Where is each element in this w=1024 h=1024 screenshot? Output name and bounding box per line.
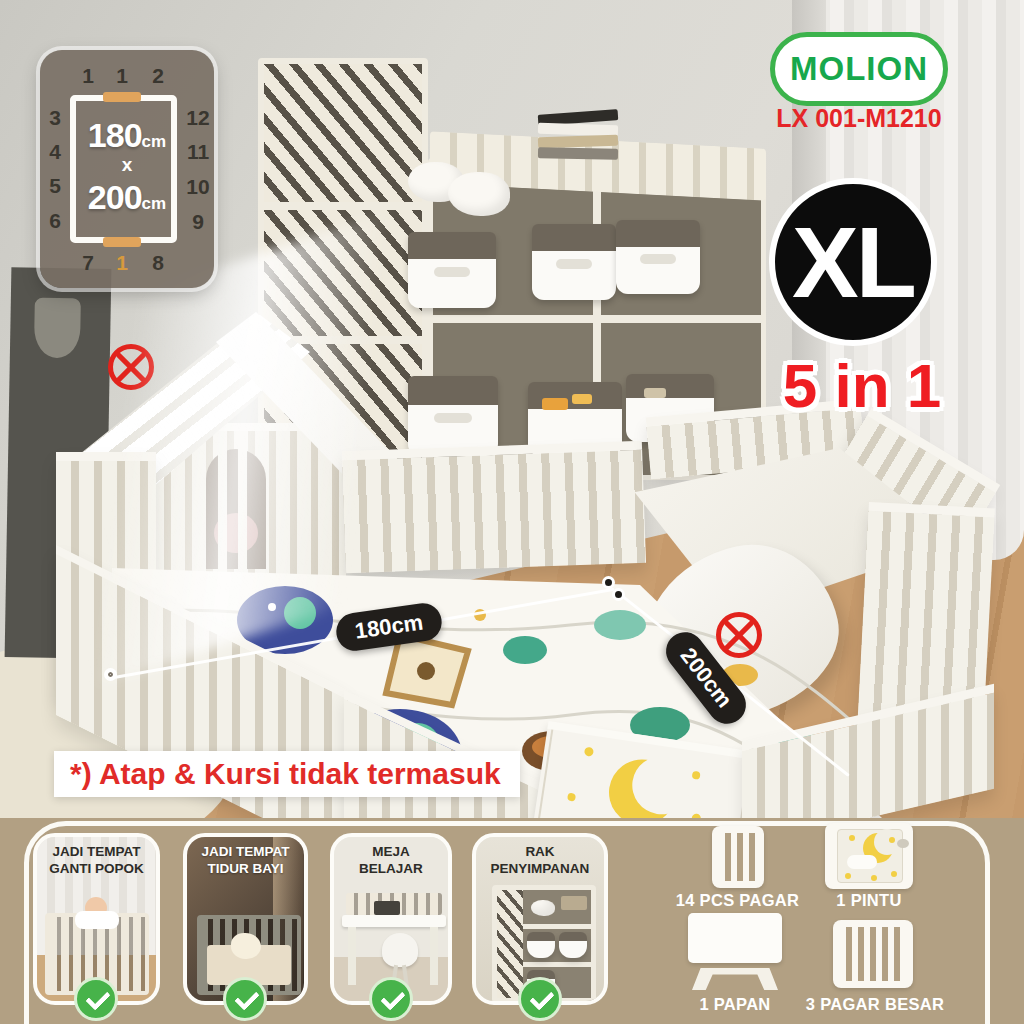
component-label: 3 PAGAR BESAR — [795, 995, 955, 1014]
poster-art — [34, 298, 81, 359]
panel-number: 2 — [144, 64, 172, 88]
component-label: 1 PAPAN — [670, 995, 800, 1014]
size-badge: XL — [769, 178, 937, 346]
playpen-back-fence — [342, 441, 646, 573]
brand-name: MOLION — [790, 50, 928, 88]
panel-number: 1 — [74, 64, 102, 88]
panel-number: 8 — [144, 251, 172, 275]
measure-dot — [602, 576, 615, 589]
panel-number: 1 — [108, 251, 136, 275]
panel-number: 1 — [108, 64, 136, 88]
width-pill-label: 180cm — [353, 609, 424, 644]
prohibition-icon-chair — [716, 612, 762, 658]
rack-shelf — [264, 202, 422, 210]
storage-basket — [532, 224, 616, 300]
door-segment-bottom — [103, 237, 141, 247]
plush-star — [231, 933, 261, 959]
product-promo-image: 180cm 200cm 1 1 2 3 4 5 6 12 11 10 9 7 1… — [0, 0, 1024, 1024]
prohibition-icon-roof — [108, 344, 154, 390]
diagram-depth: 200cm — [52, 178, 202, 217]
fence-small-icon — [712, 826, 764, 888]
bundle-badge: 5 in 1 — [752, 350, 972, 421]
feature-label: JADI TEMPAT GANTI POPOK — [37, 844, 156, 878]
diagram-width: 180cm — [52, 116, 202, 155]
mini-desk-top — [342, 915, 446, 927]
model-number: LX 001-M1210 — [752, 104, 966, 133]
house-window — [206, 449, 266, 569]
brand-logo: MOLION — [770, 32, 948, 106]
size-badge-label: XL — [792, 205, 914, 320]
door-icon — [825, 823, 913, 889]
storage-basket — [616, 220, 700, 294]
size-diagram-card: 1 1 2 3 4 5 6 12 11 10 9 7 1 8 180cm x 2… — [40, 50, 214, 288]
books-stack — [538, 112, 624, 170]
panel-number: 7 — [74, 251, 102, 275]
check-icon — [74, 977, 118, 1021]
measure-dot — [612, 588, 625, 601]
cloud-icon — [847, 855, 877, 869]
mini-books — [374, 901, 400, 915]
feature-label: MEJA BELAJAR — [334, 844, 448, 878]
check-icon — [223, 977, 267, 1021]
feature-label: JADI TEMPAT TIDUR BAYI — [187, 844, 304, 878]
mini-chair — [382, 933, 418, 967]
fence-large-icon — [833, 920, 913, 988]
measure-dot — [104, 668, 117, 681]
check-icon — [518, 977, 562, 1021]
storage-basket — [408, 376, 498, 456]
feature-label: RAK PENYIMPANAN — [476, 844, 604, 878]
check-icon — [369, 977, 413, 1021]
door-knob — [897, 839, 909, 848]
diagram-separator: x — [52, 154, 202, 176]
disclaimer-text: *) Atap & Kursi tidak termasuk — [54, 757, 501, 791]
panel-icon — [688, 913, 782, 963]
storage-basket — [408, 232, 496, 308]
plush-toy — [448, 172, 510, 216]
rack-shelf — [433, 315, 761, 323]
door-segment-top — [103, 92, 141, 102]
disclaimer-banner: *) Atap & Kursi tidak termasuk — [54, 751, 520, 797]
component-label: 1 PINTU — [804, 891, 934, 910]
